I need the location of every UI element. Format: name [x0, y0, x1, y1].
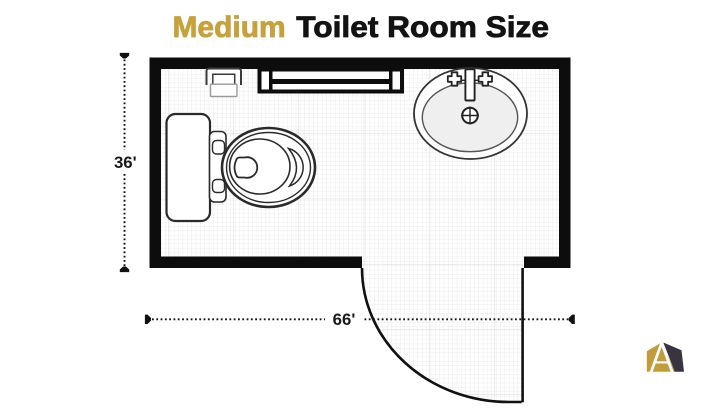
svg-text:66': 66' — [333, 310, 356, 329]
svg-text:Medium: Medium — [173, 11, 286, 44]
svg-text:Toilet Room Size: Toilet Room Size — [296, 11, 549, 44]
svg-text:36': 36' — [114, 153, 137, 172]
